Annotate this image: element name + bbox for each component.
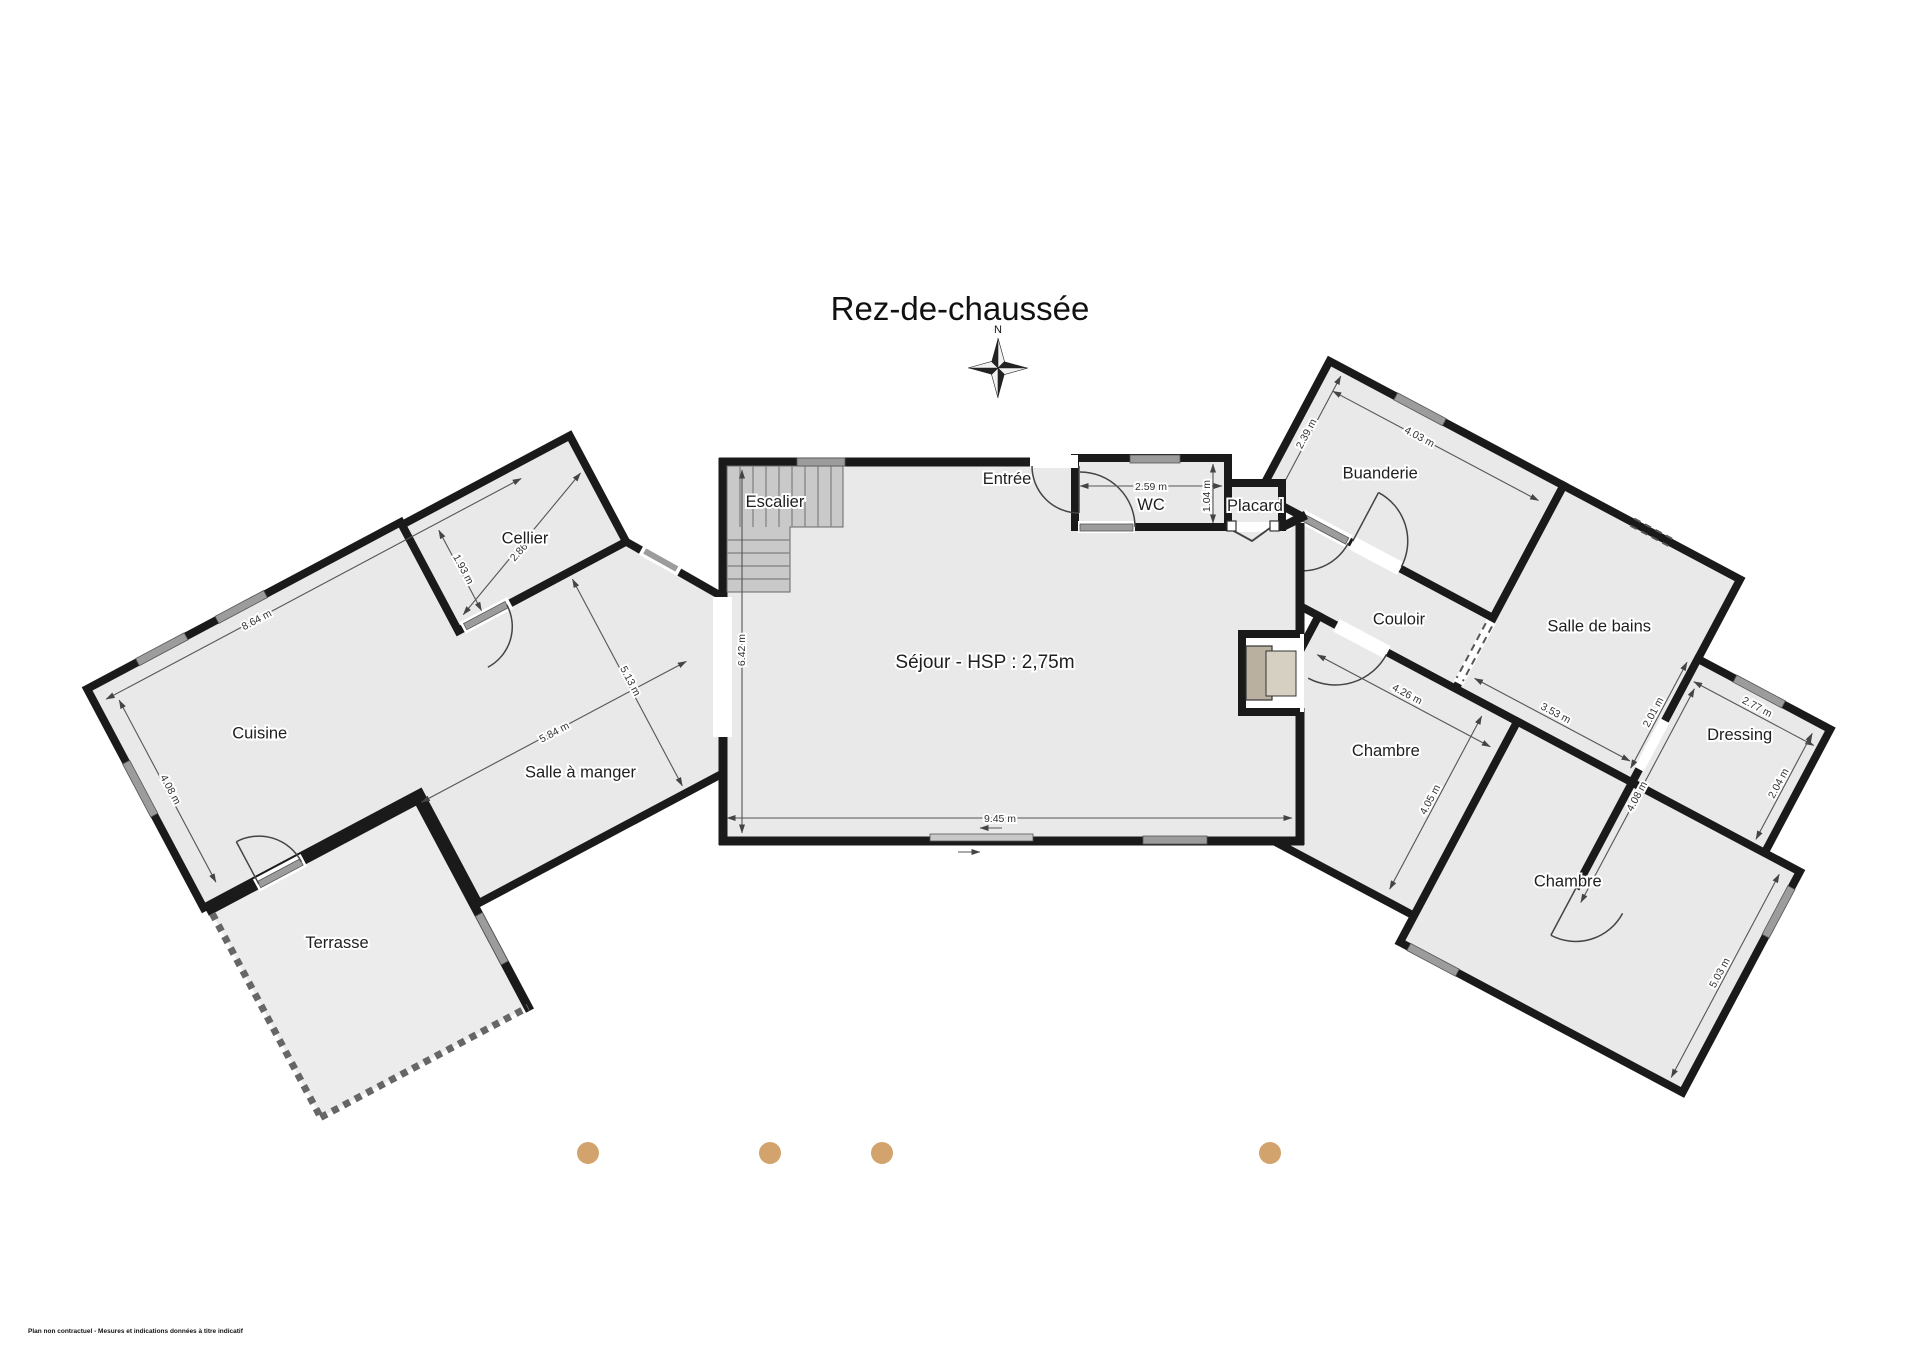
dot-4 <box>1259 1142 1281 1164</box>
placard-door-post-right <box>1270 521 1279 531</box>
window-wc-top <box>1130 455 1180 463</box>
sliding-bay-sejour <box>930 834 1033 841</box>
label-dressing: Dressing <box>1707 726 1772 744</box>
compass-rose-icon: N <box>968 324 1028 398</box>
window-sejour-top <box>797 458 845 466</box>
dim-sejour-width: 9.45 m <box>984 813 1016 825</box>
door-leaf-wc <box>1080 524 1133 531</box>
dot-1 <box>577 1142 599 1164</box>
passage-sejour-sam <box>713 597 732 737</box>
label-sejour: Séjour - HSP : 2,75m <box>895 652 1074 673</box>
dot-2 <box>759 1142 781 1164</box>
label-cellier: Cellier <box>502 529 549 547</box>
label-couloir: Couloir <box>1373 611 1426 629</box>
label-escalier: Escalier <box>746 493 805 511</box>
floorplan-canvas: Rez-de-chaussée N <box>0 0 1920 1358</box>
compass-north-label: N <box>994 324 1002 336</box>
fireplace-hearth <box>1266 651 1296 696</box>
label-salle-de-bains: Salle de bains <box>1547 617 1651 635</box>
label-placard: Placard <box>1227 497 1283 515</box>
label-terrasse: Terrasse <box>305 934 368 952</box>
label-wc: WC <box>1137 496 1165 514</box>
label-buanderie: Buanderie <box>1343 465 1418 483</box>
label-salle-a-manger: Salle à manger <box>525 764 636 782</box>
dim-wc-depth: 1.04 m <box>1201 480 1213 512</box>
dim-wc-width: 2.59 m <box>1135 481 1167 493</box>
floorplan-page: Rez-de-chaussée N <box>0 0 1920 1358</box>
center-section: 6.42 m 9.45 m 2.59 m 1.04 m Escalier Ent… <box>719 455 1306 852</box>
door-gap-entree <box>1030 455 1078 468</box>
placard-door-post-left <box>1227 521 1236 531</box>
window-sejour-bottom <box>1143 836 1207 844</box>
page-dots <box>577 1142 1281 1164</box>
label-entree: Entrée <box>983 470 1032 488</box>
dim-sejour-height: 6.42 m <box>736 634 748 666</box>
label-chambre-1: Chambre <box>1352 742 1420 760</box>
label-chambre-2: Chambre <box>1534 872 1602 890</box>
dot-3 <box>871 1142 893 1164</box>
page-title: Rez-de-chaussée <box>831 290 1090 327</box>
disclaimer-text: Plan non contractuel - Mesures et indica… <box>28 1328 244 1335</box>
label-cuisine: Cuisine <box>232 725 287 743</box>
